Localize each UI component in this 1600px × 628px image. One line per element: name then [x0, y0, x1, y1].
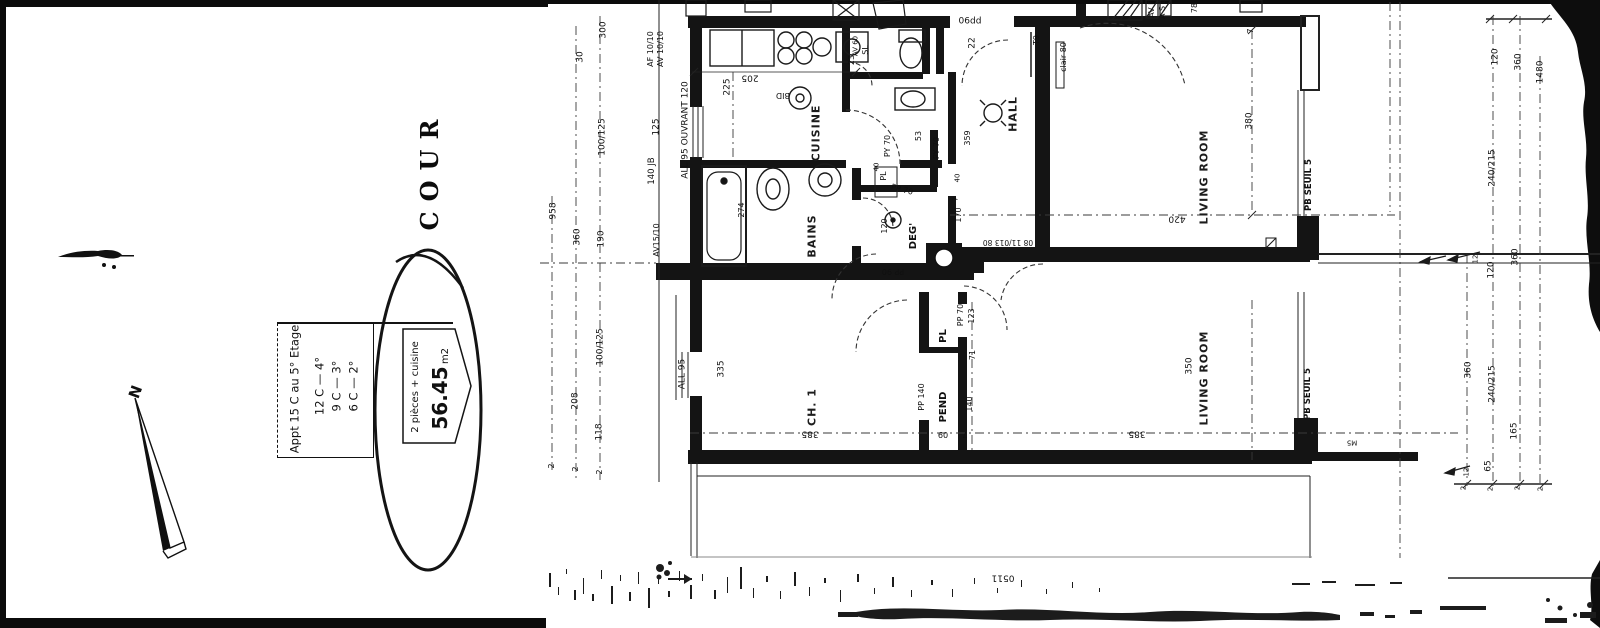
info-line-2: 12 C — 4° — [314, 357, 326, 415]
dim-170: 170 — [955, 207, 963, 222]
dim-7-mid: 7 — [953, 197, 960, 201]
dim-385-right: 385 — [1128, 429, 1145, 438]
scan-noise-bottom — [549, 561, 1596, 623]
dim-359: 359 — [964, 130, 972, 145]
fixture-label-bid: BID — [776, 91, 790, 99]
burner-icon — [778, 32, 794, 48]
dim-225: 225 — [724, 78, 733, 95]
dim-140jb: 140 JB — [648, 157, 657, 184]
dim-t9: T9 — [1033, 35, 1041, 45]
dim-all95-ouvrant: ALL 95 OUVRANT 120 — [682, 81, 691, 179]
dim-120-midright: 120 — [1488, 261, 1497, 278]
room-label-pend: PEND — [939, 392, 949, 423]
dim-pp70-pl: PP 70 — [957, 304, 965, 326]
wc-icon — [899, 30, 925, 42]
info-line-4: 6 C — 2° — [348, 361, 360, 412]
round-basin-icon — [809, 164, 841, 196]
dim-240-215-top: 240/215 — [1489, 149, 1498, 186]
room-label-ch1: CH. 1 — [807, 388, 818, 426]
dim-78: 78 — [1191, 3, 1199, 13]
room-label-bains: BAINS — [807, 214, 818, 257]
bidet-icon — [789, 87, 811, 109]
dim-7-top: 7 — [1247, 28, 1255, 33]
dim-360-left: 360 — [574, 228, 583, 245]
dim-1480: 1480 — [1537, 61, 1546, 84]
dim-190: 190 — [598, 230, 607, 247]
dim-65: 65 — [1485, 460, 1494, 471]
dim-12-mid: 12 — [1473, 255, 1480, 264]
dim-asl: A S L — [1159, 0, 1167, 19]
dim-360-botright: 360 — [1465, 361, 1474, 378]
smudge-mark — [58, 250, 134, 269]
room-label-hall: HALL — [1008, 96, 1019, 132]
scan-blob-right — [1548, 0, 1600, 332]
dim-350: 350 — [1186, 357, 1195, 374]
dim-360-midright: 360 — [1512, 248, 1521, 265]
dim-tick-2: 2 — [1515, 486, 1522, 490]
scan-text-0511: 0511 — [992, 573, 1015, 582]
closet-label-pl: PL — [880, 171, 888, 180]
sill-label-bottom: PB SEUIL 5 — [1304, 368, 1313, 420]
area-value: 56.45 — [430, 366, 450, 429]
dim-30: 30 — [577, 51, 586, 62]
burner-icon — [796, 48, 812, 64]
dim-420: 420 — [1168, 214, 1185, 223]
room-label-cuisine: CUISINE — [811, 105, 822, 162]
dim-360-topright: 360 — [1515, 53, 1524, 70]
dim-pp140: PP 140 — [918, 383, 926, 410]
dim-240-215-bottom: 240/215 — [1489, 365, 1498, 402]
basin-icon — [757, 168, 789, 210]
dim-300: 300 — [600, 21, 609, 38]
apartment-type-label: 2 pièces + cuisine — [411, 341, 421, 433]
dim-208: 208 — [572, 392, 581, 409]
dim-12-bottom: 12 — [1464, 468, 1471, 477]
info-line-3: 9 C — 3° — [331, 361, 343, 412]
dim-tick-2: 2 — [596, 469, 604, 474]
dim-py70-left: PY 70 — [884, 135, 892, 157]
info-line-1: Appt 15 C au 5° Etage — [289, 325, 301, 454]
dim-af1010: AF 10/10 — [647, 31, 655, 67]
sill-label-top: PB SEUIL 5 — [1305, 159, 1314, 211]
dim-205: 205 — [741, 73, 758, 82]
dim-tick-2: 2 — [572, 466, 580, 471]
burner-icon — [778, 48, 794, 64]
dim-71: 71 — [969, 350, 977, 360]
dim-165: 165 — [1511, 422, 1520, 439]
dim-09: 09 — [938, 430, 948, 438]
dim-274: 274 — [738, 202, 746, 217]
dim-123: 123 — [968, 308, 976, 323]
dim-all95: ALL 95 — [679, 359, 688, 390]
dim-tick-2: 2 — [1538, 487, 1545, 491]
dim-53: 53 — [915, 131, 923, 141]
plan-drawing — [0, 0, 1600, 628]
dim-av15: AV15/10 — [653, 223, 661, 257]
dim-av1010: AV 10/10 — [657, 31, 665, 67]
ceiling-light-icon — [984, 104, 1002, 122]
dim-tick-2: 2 — [548, 463, 556, 468]
floorplan-scan: Appt 15 C au 5° Etage 12 C — 4° 9 C — 3°… — [0, 0, 1600, 628]
dim-clair80: clair 80 — [1060, 42, 1068, 72]
dim-22: 22 — [969, 37, 978, 48]
dim-06dd: 06dd — [959, 18, 982, 27]
dim-100-125-top: 100/125 — [599, 118, 608, 155]
dim-118: 118 — [596, 423, 605, 440]
room-label-deg: DEG' — [909, 223, 919, 249]
north-arrow — [135, 398, 186, 558]
dim-100-125-bottom: 100/125 — [597, 328, 606, 365]
dim-tick-2: 2 — [1461, 486, 1468, 490]
dim-120-deg: 120 — [881, 218, 889, 233]
room-label-pl: PL — [939, 329, 949, 343]
dim-335: 335 — [718, 360, 727, 377]
burner-icon — [796, 32, 812, 48]
dim-958: 958 — [550, 202, 559, 219]
courtyard-label: COUR — [418, 110, 442, 231]
room-label-living-top: LIVING ROOM — [1199, 130, 1210, 225]
dim-23: 23 — [848, 55, 856, 65]
dim-avf: AV F — [1148, 0, 1156, 18]
room-label-living-bottom: LIVING ROOM — [1199, 331, 1210, 426]
dim-av60: AV 60 — [853, 36, 860, 56]
dim-tick-2: 2 — [1488, 487, 1495, 491]
dim-08-11-013-80: 08 11/013 80 — [983, 238, 1033, 246]
dim-py70-right: PY 70 — [933, 137, 941, 159]
dim-40-closet: 40 — [874, 163, 881, 172]
dim-40: 40 — [955, 174, 962, 183]
dim-125: 125 — [653, 118, 662, 135]
area-unit: m2 — [441, 348, 451, 364]
dim-7-bottom: 7 — [962, 430, 967, 438]
dim-m5: M5 — [1347, 439, 1358, 446]
dim-385-left: 385 — [801, 429, 818, 438]
dim-ep: EP — [942, 254, 949, 263]
dim-sl: SL — [862, 45, 870, 55]
dim-pp90: PP 90 — [882, 267, 904, 275]
fixtures — [702, 30, 1276, 267]
dim-120-topright: 120 — [1492, 48, 1501, 65]
dim-380: 380 — [1246, 112, 1255, 129]
dim-140: 140 — [966, 396, 974, 411]
